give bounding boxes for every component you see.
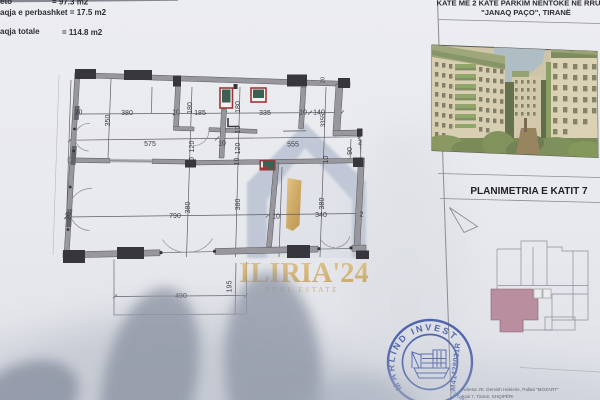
svg-text:180: 180 [235, 101, 242, 113]
svg-text:380: 380 [319, 198, 326, 210]
svg-text:555: 555 [287, 142, 299, 149]
svg-text:aqja totale: aqja totale [0, 27, 40, 36]
svg-text:575: 575 [144, 141, 156, 148]
svg-text:10: 10 [218, 141, 226, 148]
svg-text:10: 10 [272, 214, 280, 221]
svg-text:= 114.8 m2: = 114.8 m2 [62, 28, 103, 37]
svg-text:10: 10 [172, 110, 180, 117]
svg-text:eto: eto [0, 0, 12, 6]
svg-text:PLANIMETRIA E KATIT 7: PLANIMETRIA E KATIT 7 [470, 186, 588, 197]
svg-text:120: 120 [235, 143, 242, 155]
svg-text:350: 350 [105, 115, 112, 127]
svg-text:2: 2 [360, 212, 364, 219]
svg-text:340: 340 [315, 212, 327, 219]
svg-text:"JANAQ PAÇO", TIRANË: "JANAQ PAÇO", TIRANË [481, 8, 571, 17]
svg-text:2: 2 [358, 140, 362, 147]
svg-text:KATE ME 2 KATE PARKIM NËNTOKË: KATE ME 2 KATE PARKIM NËNTOKË NË RRUGË [437, 0, 600, 7]
svg-text:180: 180 [187, 102, 194, 114]
svg-text:380: 380 [185, 202, 192, 214]
svg-text:10: 10 [323, 156, 330, 164]
svg-text:10: 10 [235, 126, 242, 134]
svg-text:185: 185 [194, 110, 206, 117]
svg-text:3355: 3355 [321, 113, 327, 127]
svg-text:20: 20 [75, 110, 83, 117]
svg-text:380: 380 [235, 199, 242, 211]
svg-text:10: 10 [234, 158, 241, 166]
svg-text:aqja e perbashket = 17.5 m2: aqja e perbashket = 17.5 m2 [0, 8, 107, 17]
svg-text:120: 120 [189, 141, 196, 153]
svg-text:20: 20 [66, 212, 73, 220]
svg-text:= 97.3 m2: = 97.3 m2 [52, 0, 89, 7]
svg-text:20: 20 [321, 77, 327, 83]
svg-text:10: 10 [299, 110, 307, 117]
svg-text:10: 10 [189, 157, 196, 165]
svg-text:335: 335 [259, 110, 271, 117]
svg-text:790: 790 [169, 213, 181, 220]
svg-text:195: 195 [227, 281, 234, 293]
svg-text:380: 380 [121, 110, 133, 117]
svg-text:90: 90 [347, 147, 354, 155]
